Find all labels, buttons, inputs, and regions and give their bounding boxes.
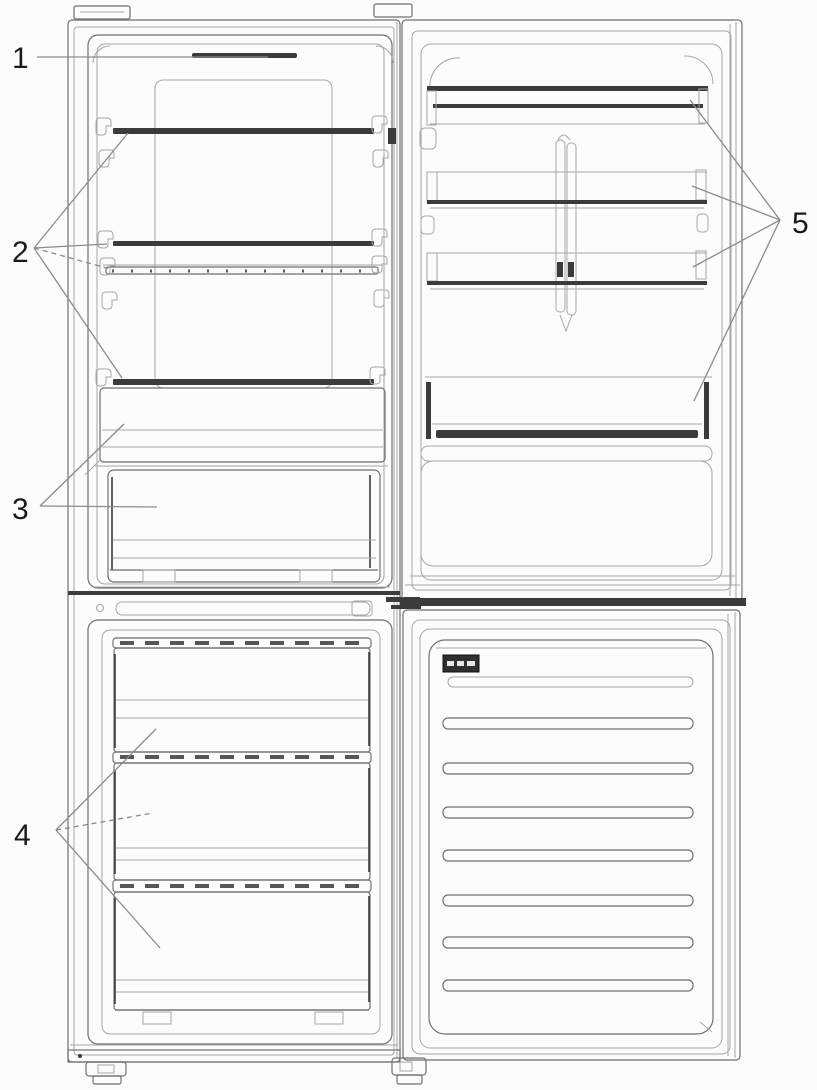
leveling-foot-left (86, 1062, 126, 1084)
callout-2-label: 2 (12, 236, 29, 269)
callout-2: 2 (12, 133, 128, 378)
door-bottom-edge (400, 598, 746, 606)
refrigerator-parts-diagram: 1 2 3 4 5 (0, 0, 817, 1090)
callout-1: 1 (12, 42, 268, 75)
glass-shelf-4 (113, 379, 374, 385)
cabinet-base (68, 1045, 426, 1084)
crisper-drawer-group (95, 466, 390, 587)
drawer-glide-left (143, 1012, 171, 1024)
door-rib (443, 850, 693, 861)
rating-plate (443, 655, 479, 672)
chiller-box (100, 388, 385, 462)
crisper-glide-right (300, 570, 332, 582)
diagram-canvas: 1 2 3 4 5 (0, 0, 817, 1090)
back-panel (155, 80, 332, 388)
cabinet-body (68, 6, 400, 1062)
door-rib (443, 980, 693, 991)
fridge-compartment-liner (88, 35, 396, 588)
top-hinge-cap-right (374, 4, 412, 17)
callout-4: 4 (14, 729, 160, 948)
callout-3-label: 3 (12, 493, 29, 526)
door-corner-brace-right (684, 56, 713, 84)
door-rib (443, 895, 693, 906)
callout-3: 3 (12, 424, 157, 526)
callout-5-label: 5 (792, 207, 809, 240)
door-rib (443, 718, 693, 729)
door-lower-panel (421, 461, 712, 566)
door-bottle-rack (421, 377, 712, 461)
compartment-divider (68, 591, 421, 616)
liner-corner-brace-left (93, 46, 110, 63)
door-rib (443, 807, 693, 818)
door-center-divider (556, 135, 576, 331)
freezer-door-recess (429, 640, 713, 1034)
door-wall-clip-1 (420, 128, 436, 149)
freezer-door (403, 610, 740, 1060)
glass-shelf-3 (106, 267, 378, 274)
glass-shelf-2 (113, 241, 374, 246)
drawer-glide-right (315, 1012, 343, 1024)
callout-2-leader (34, 133, 128, 248)
chiller-compartment (85, 388, 385, 475)
crisper-glide-left (143, 570, 175, 582)
divider-slot (116, 602, 370, 615)
callout-5: 5 (690, 100, 809, 401)
door-rib (443, 937, 693, 948)
door-rib (443, 763, 693, 774)
freezer-drawer-2 (114, 763, 370, 880)
callout-4-leader (56, 729, 156, 830)
door-wall-clip-2 (421, 216, 434, 234)
door-hinge-pin (388, 128, 396, 144)
door-rack-1 (427, 86, 708, 125)
fridge-shelves (96, 116, 389, 386)
freezer-door-ribs (443, 677, 693, 991)
door-rib (448, 677, 693, 687)
door-corner-brace-left (430, 58, 460, 88)
glass-shelf-1 (113, 128, 374, 134)
callout-4-label: 4 (14, 819, 31, 852)
crisper-drawer (108, 470, 380, 582)
freezer-drawers (113, 638, 371, 1024)
callout-1-label: 1 (12, 42, 29, 75)
fridge-door (374, 4, 746, 606)
